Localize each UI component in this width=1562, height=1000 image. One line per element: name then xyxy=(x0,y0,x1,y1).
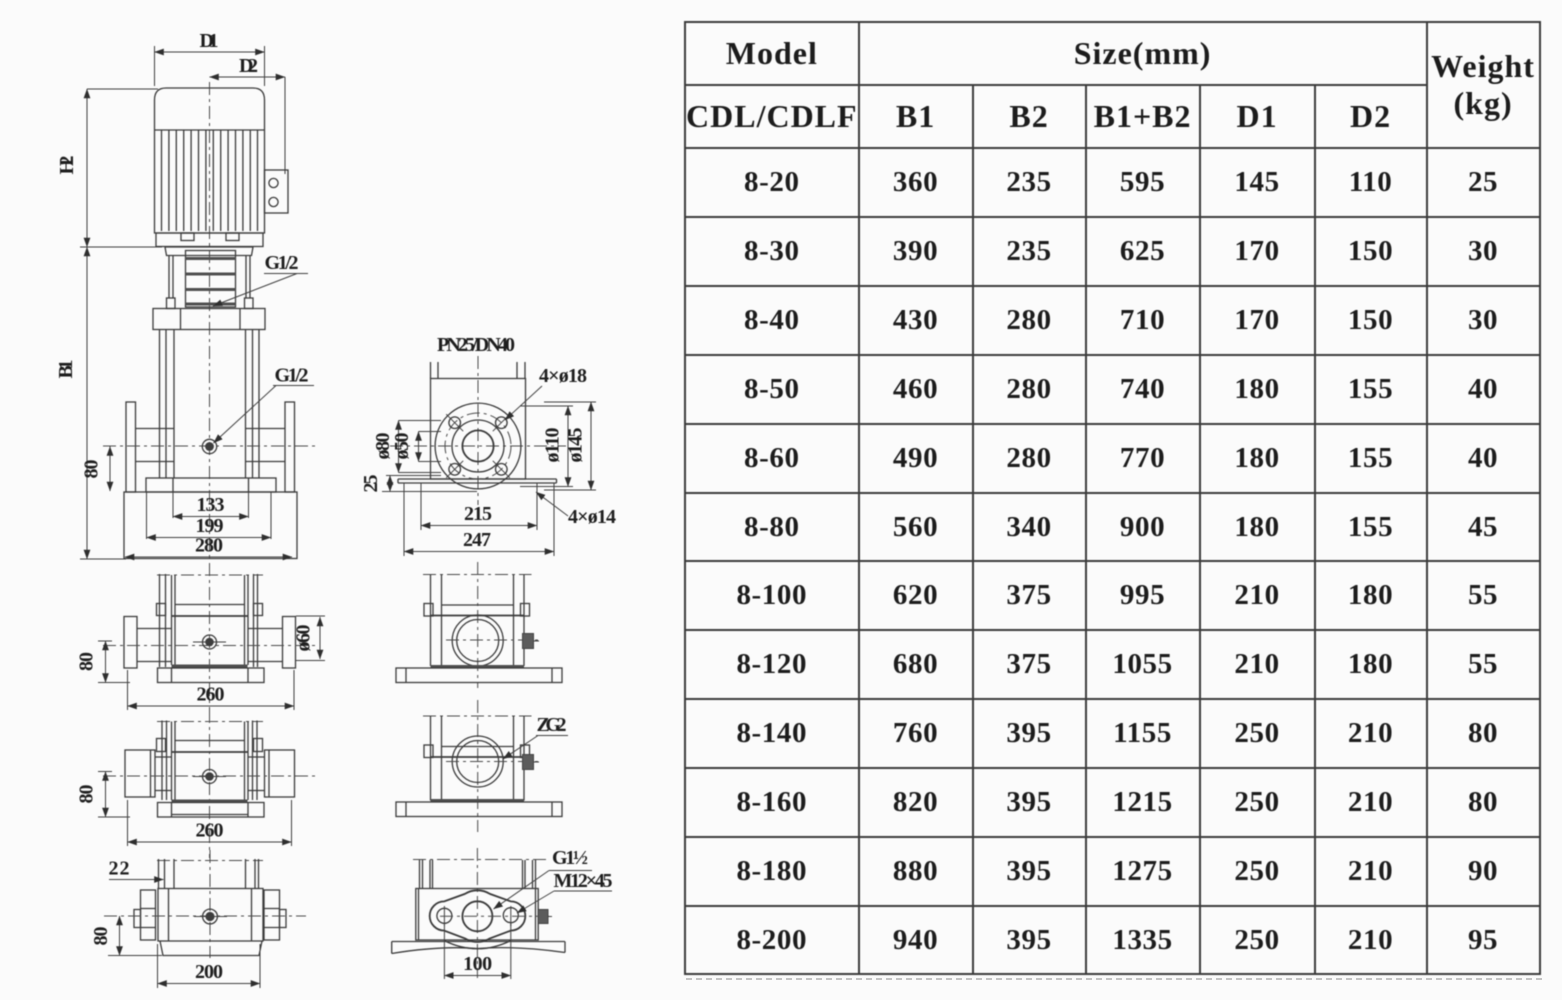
svg-text:ø50: ø50 xyxy=(391,433,413,460)
svg-text:280: 280 xyxy=(195,535,223,557)
svg-text:80: 80 xyxy=(76,652,98,671)
svg-text:G1/2: G1/2 xyxy=(265,252,299,274)
svg-text:200: 200 xyxy=(195,961,223,983)
svg-text:247: 247 xyxy=(463,529,491,551)
svg-text:133: 133 xyxy=(197,494,225,516)
svg-text:80: 80 xyxy=(76,785,98,804)
svg-text:100: 100 xyxy=(463,953,492,975)
svg-text:D2: D2 xyxy=(239,55,258,77)
svg-text:260: 260 xyxy=(196,820,224,842)
svg-text:80: 80 xyxy=(90,927,112,946)
svg-text:ø145: ø145 xyxy=(565,428,587,463)
svg-text:ø60: ø60 xyxy=(293,625,315,652)
svg-text:4×ø14: 4×ø14 xyxy=(568,506,616,528)
svg-text:260: 260 xyxy=(197,684,225,706)
svg-text:25: 25 xyxy=(360,475,382,493)
svg-text:80: 80 xyxy=(81,460,103,479)
svg-text:ZG2: ZG2 xyxy=(537,714,567,736)
svg-text:4×ø18: 4×ø18 xyxy=(539,365,587,387)
svg-text:G1½: G1½ xyxy=(552,847,588,869)
svg-text:G1/2: G1/2 xyxy=(275,365,309,387)
svg-text:215: 215 xyxy=(464,503,492,525)
svg-text:B1: B1 xyxy=(55,360,77,379)
svg-text:H2: H2 xyxy=(56,156,78,175)
svg-text:ø110: ø110 xyxy=(542,428,564,463)
svg-text:M12×45: M12×45 xyxy=(554,870,613,892)
svg-text:PN25/DN40: PN25/DN40 xyxy=(437,334,515,356)
svg-text:D1: D1 xyxy=(200,30,219,52)
svg-text:22: 22 xyxy=(109,858,130,880)
